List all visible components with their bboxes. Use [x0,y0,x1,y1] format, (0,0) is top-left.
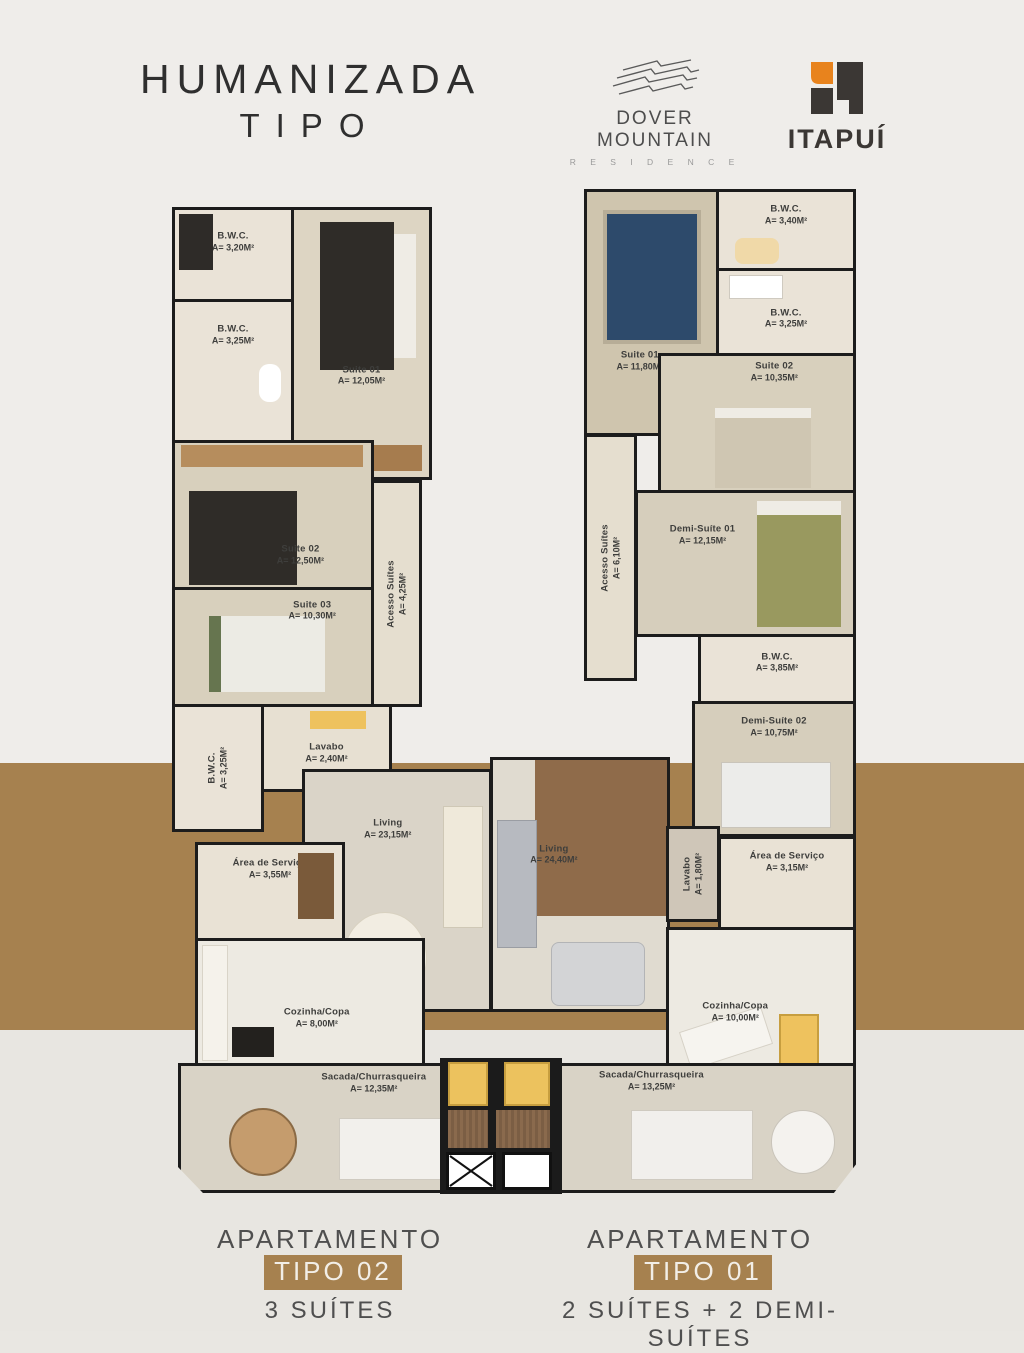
entry-door-mat-right [504,1062,550,1106]
bathtub [735,238,779,264]
room-label: B.W.C.A= 3,40M² [719,203,853,226]
bed [715,408,811,488]
room-label: Demi-Suíte 02A= 10,75M² [695,716,853,739]
room-bwc-top-left: B.W.C.A= 3,20M² [172,207,294,302]
bed [757,501,841,627]
room-lavabo-right: LavaboA= 1,80M² [666,826,720,922]
sofa [443,806,483,928]
room-area-servico-left: Área de ServiçoA= 3,55M² [195,842,345,941]
hall-floor [496,1110,550,1148]
room-label: Acesso SuítesA= 4,25M² [385,560,408,628]
room-bwc-2-right: B.W.C.A= 3,25M² [716,268,856,356]
room-acesso-suites-right: Acesso SuítesA= 6,10M² [584,434,637,681]
bed-pillows [394,234,416,358]
room-bwc-2-left: B.W.C.A= 3,25M² [172,299,294,443]
room-label: B.W.C.A= 3,25M² [175,324,291,347]
room-demi-suite01-right: Demi-Suíte 01A= 12,15M² [635,490,856,637]
elevator-shaft [502,1152,552,1190]
room-demi-suite02-right: Demi-Suíte 02A= 10,75M² [692,701,856,837]
entry-door-mat-left [448,1062,488,1106]
laundry-cabinet [298,853,334,919]
bed [209,616,325,692]
caption-tipo01: APARTAMENTOTIPO 01 2 SUÍTES + 2 DEMI-SUÍ… [520,1224,880,1353]
room-label: B.W.C.A= 3,85M² [701,651,853,674]
toilet [259,364,281,402]
cooktop [232,1027,274,1057]
counter [202,945,228,1061]
room-living-right: LivingA= 24,40M² [490,757,670,1012]
elevator-x-icon [449,1155,493,1187]
bed [189,491,297,585]
room-suite02-left: Suite 02A= 12,50M² [172,440,374,590]
caption-badge-tipo01: TIPO 01 [634,1255,772,1290]
room-label: Demi-Suíte 01A= 12,15M² [642,524,762,547]
room-cozinha-right: Cozinha/CopaA= 10,00M² [666,927,856,1075]
room-label: Cozinha/CopaA= 8,00M² [238,1006,395,1029]
room-cozinha-left: Cozinha/CopaA= 8,00M² [195,938,425,1068]
room-bwc-3-left: B.W.C.A= 3,25M² [172,704,264,832]
bed [721,762,831,828]
caption-subtitle-tipo01: 2 SUÍTES + 2 DEMI-SUÍTES [520,1297,880,1353]
room-label: B.W.C.A= 3,25M² [719,307,853,330]
caption-apartamento-label: APARTAMENTO [217,1224,443,1254]
rug [535,760,667,916]
bed [603,210,701,344]
room-label: Área de ServiçoA= 3,15M² [721,850,853,873]
desk [181,445,363,467]
room-label: LavaboA= 2,40M² [264,741,389,764]
pantry-door [779,1014,819,1066]
cabinet [310,711,366,729]
hall-floor [448,1110,488,1148]
room-bwc-3-right: B.W.C.A= 3,85M² [698,634,856,704]
caption-tipo02: APARTAMENTOTIPO 02 3 SUÍTES [150,1224,510,1325]
room-label: B.W.C.A= 3,25M² [206,747,229,789]
caption-subtitle-tipo02: 3 SUÍTES [150,1297,510,1325]
sink-counter [729,275,783,299]
room-label: Acesso SuítesA= 6,10M² [599,524,622,592]
room-sacada-right: Sacada/ChurrasqueiraA= 13,25M² [540,1063,856,1193]
bed [320,222,394,370]
caption-apartamento-label: APARTAMENTO [587,1224,813,1254]
room-label: Sacada/ChurrasqueiraA= 13,25M² [555,1069,747,1092]
lounge [631,1110,753,1180]
elevator-shaft [446,1152,496,1190]
floor-plan: B.W.C.A= 3,20M² Suite 01A= 12,05M² B.W.C… [0,0,1024,1331]
island [679,1006,773,1071]
caption-badge-tipo02: TIPO 02 [264,1255,402,1290]
room-suite03-left: Suite 03A= 10,30M² [172,587,374,707]
sofa [497,820,537,948]
room-area-servico-right: Área de ServiçoA= 3,15M² [718,836,856,930]
building-core [440,1058,562,1194]
room-suite02-right: Suite 02A= 10,35M² [658,353,856,493]
dining-table [551,942,645,1006]
room-bwc-1-right: B.W.C.A= 3,40M² [716,189,856,271]
round-table [229,1108,297,1176]
room-acesso-suites-left: Acesso SuítesA= 4,25M² [371,480,422,707]
vanity [179,214,213,270]
round-table [771,1110,835,1174]
room-label: LavaboA= 1,80M² [681,853,704,895]
room-label: Suite 02A= 10,35M² [703,361,845,384]
